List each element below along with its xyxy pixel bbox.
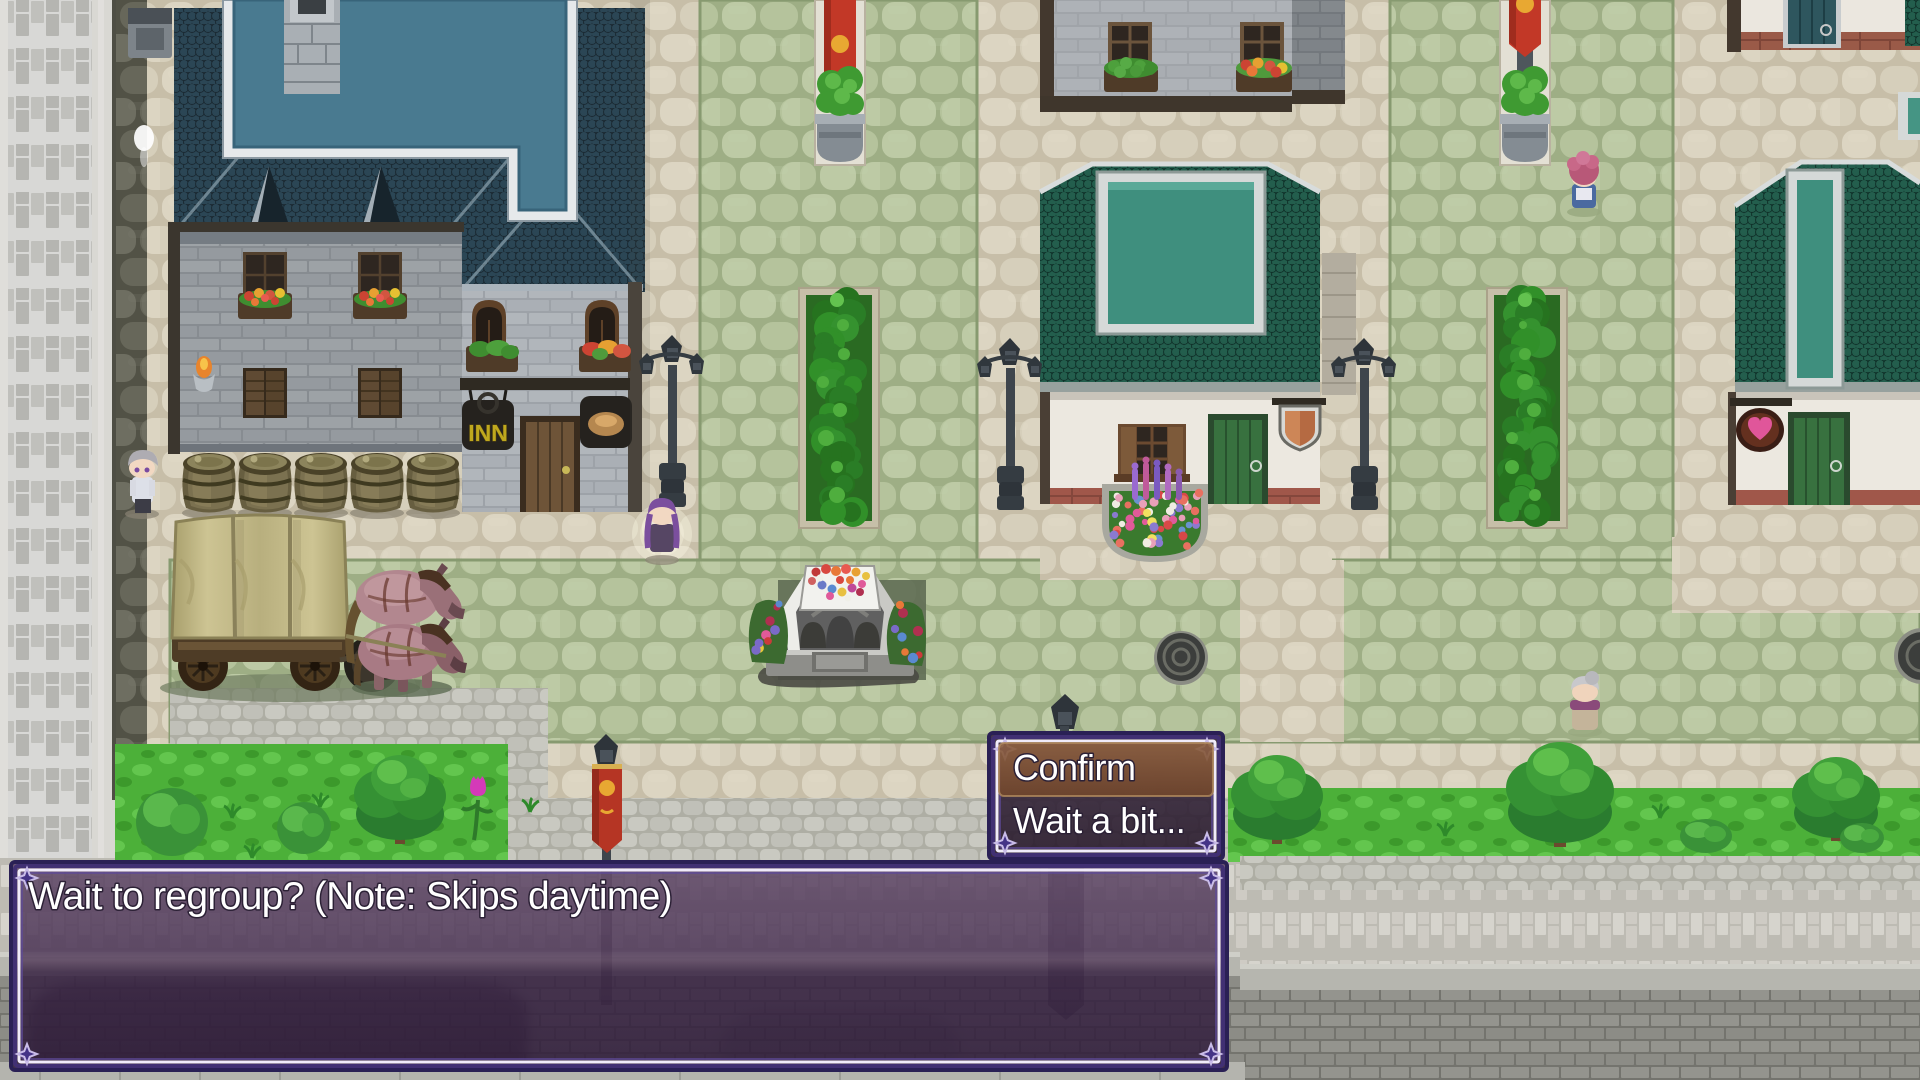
svg-text:Confirm: Confirm [1013, 747, 1136, 788]
svg-text:Wait to regroup? (Note: Skips: Wait to regroup? (Note: Skips daytime) [28, 875, 672, 918]
svg-text:INN: INN [468, 420, 508, 446]
svg-text:Wait a bit...: Wait a bit... [1013, 800, 1185, 841]
